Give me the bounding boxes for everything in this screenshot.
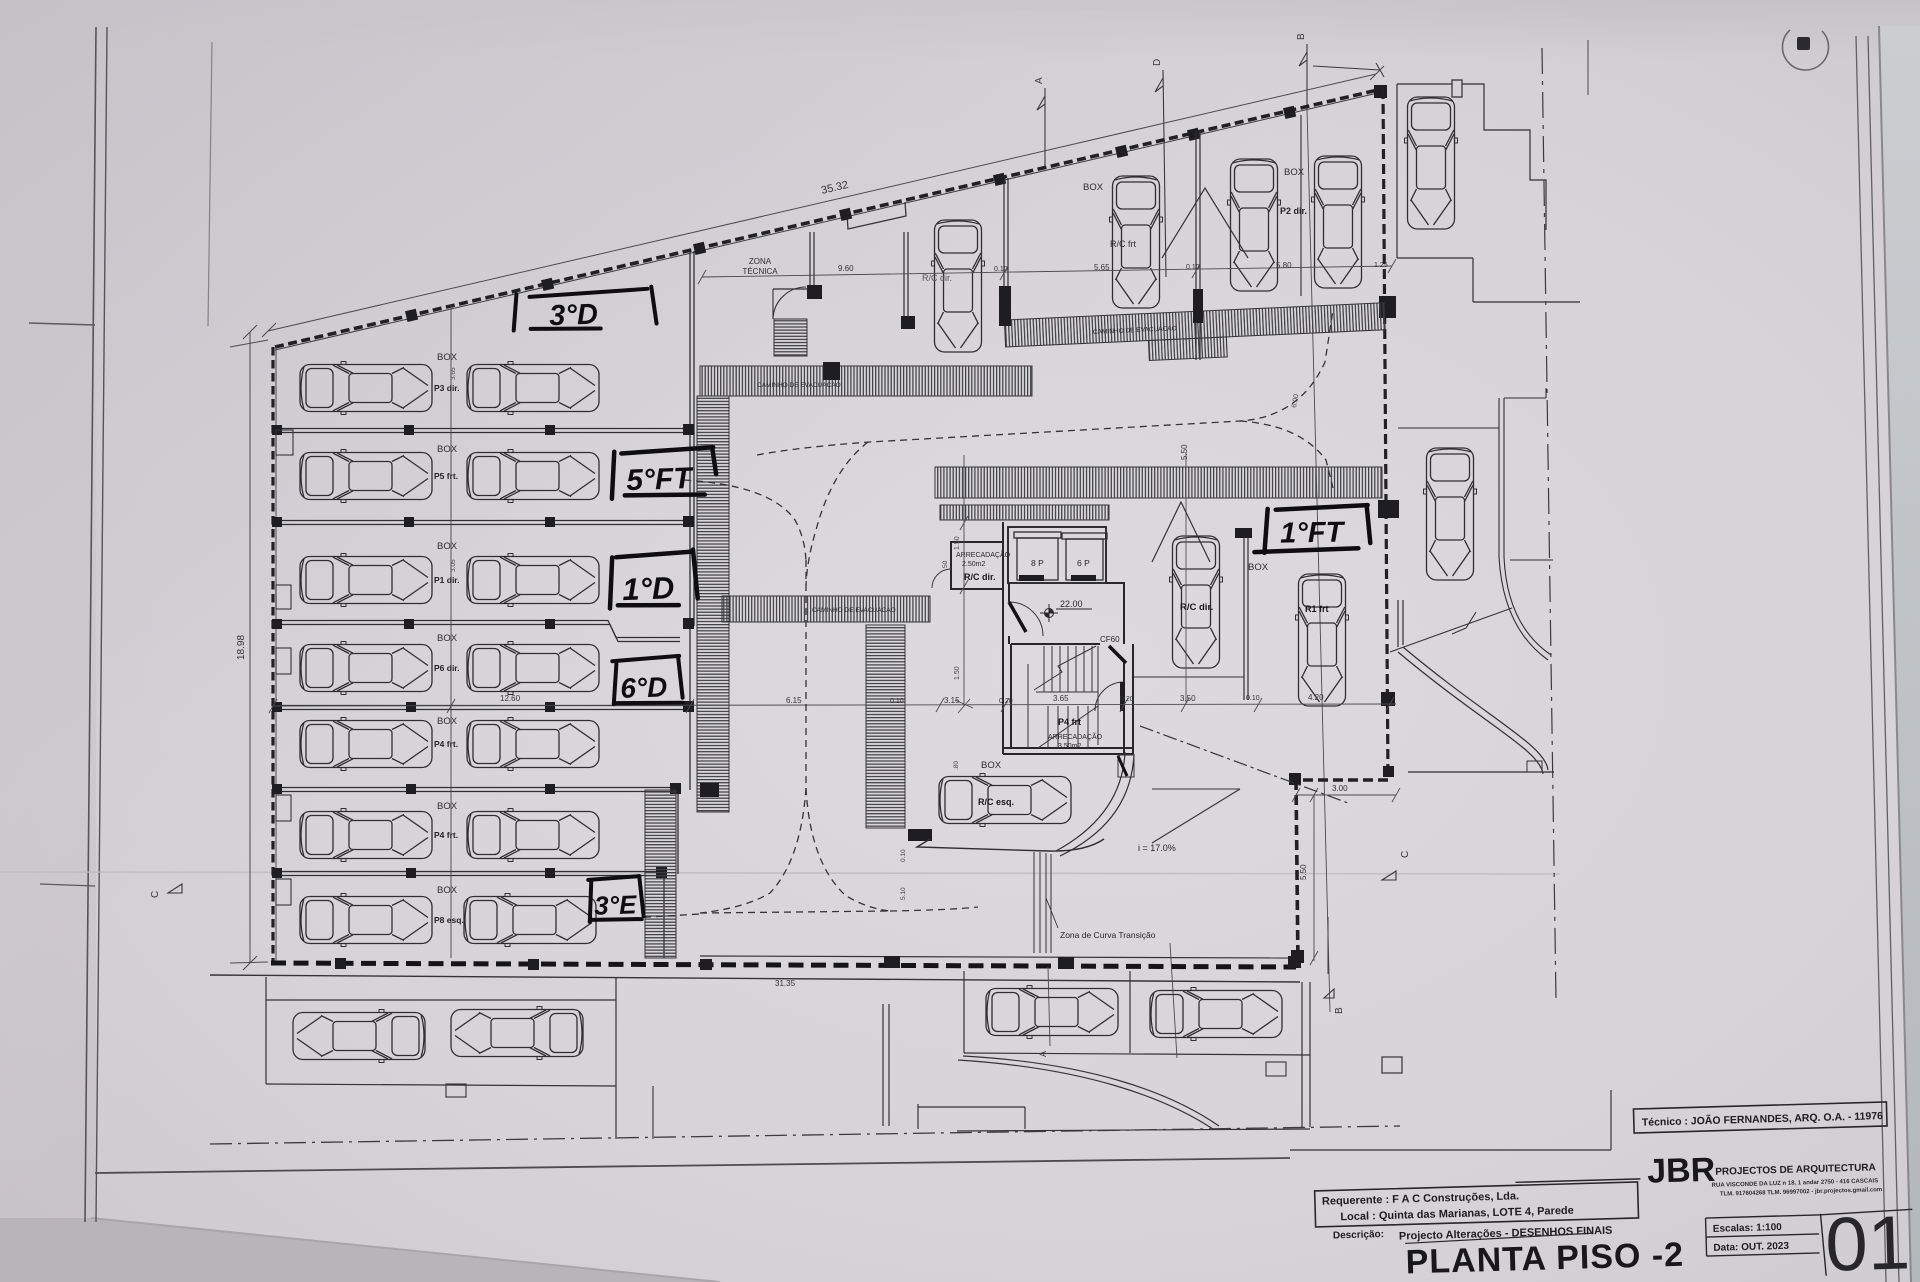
svg-text:3°E: 3°E [594, 889, 638, 920]
svg-text:3.65: 3.65 [450, 367, 457, 380]
svg-text:4.20: 4.20 [1308, 693, 1324, 702]
svg-text:1°FT: 1°FT [1280, 516, 1346, 549]
svg-text:0.10: 0.10 [890, 698, 904, 705]
svg-text:P4 frt: P4 frt [1058, 717, 1081, 727]
svg-text:B: B [1296, 33, 1307, 40]
svg-text:P2 dir.: P2 dir. [1280, 206, 1307, 216]
svg-text:3.15: 3.15 [944, 696, 960, 705]
svg-text:0.10: 0.10 [1246, 695, 1260, 702]
svg-text:Escalas: 1:100: Escalas: 1:100 [1713, 1222, 1783, 1235]
svg-text:BOX: BOX [437, 444, 458, 455]
svg-text:TÉCNICA: TÉCNICA [742, 267, 778, 276]
svg-text:3.50m2: 3.50m2 [1058, 743, 1081, 750]
svg-text:P8 esq.: P8 esq. [434, 915, 464, 925]
svg-text:Data: OUT. 2023: Data: OUT. 2023 [1713, 1241, 1789, 1254]
svg-text:5.65: 5.65 [1094, 263, 1110, 272]
svg-text:BOX: BOX [437, 801, 458, 812]
svg-text:3.50: 3.50 [1180, 694, 1196, 703]
svg-text:P3 dir.: P3 dir. [434, 383, 460, 393]
svg-text:B: B [1334, 1007, 1345, 1014]
svg-text:BOX: BOX [437, 633, 458, 644]
svg-text:5.50: 5.50 [1180, 444, 1189, 460]
svg-text:5°FT: 5°FT [626, 462, 695, 497]
svg-text:A: A [1034, 77, 1045, 84]
svg-text:1.50: 1.50 [954, 666, 961, 680]
svg-text:R/C dir.: R/C dir. [964, 572, 996, 582]
svg-text:BOX: BOX [981, 760, 1002, 771]
svg-text:ZONA: ZONA [749, 257, 772, 266]
svg-text:BOX: BOX [437, 352, 458, 363]
svg-text:BOX: BOX [437, 885, 458, 896]
svg-text:D: D [1152, 59, 1163, 66]
svg-text:22.00: 22.00 [1060, 599, 1083, 609]
svg-text:3.65: 3.65 [1053, 694, 1069, 703]
svg-text:R/C frt: R/C frt [1110, 239, 1136, 249]
svg-text:5.50: 5.50 [1299, 864, 1308, 880]
svg-text:P1 dir.: P1 dir. [434, 575, 460, 585]
svg-text:Descrição:: Descrição: [1333, 1229, 1384, 1241]
svg-text:1°D: 1°D [622, 570, 675, 607]
svg-text:2.50m2: 2.50m2 [962, 561, 985, 568]
svg-text:.80: .80 [953, 761, 960, 770]
svg-text:C: C [150, 891, 161, 898]
svg-text:1.25: 1.25 [1374, 262, 1388, 269]
svg-text:5.10: 5.10 [900, 887, 907, 900]
svg-text:12.60: 12.60 [500, 694, 521, 703]
svg-text:0.20: 0.20 [999, 698, 1013, 705]
svg-text:18.98: 18.98 [236, 635, 247, 660]
svg-text:0.10: 0.10 [900, 849, 907, 862]
svg-text:ARRECADAÇÃO: ARRECADAÇÃO [1048, 732, 1103, 741]
svg-text:P6 dir.: P6 dir. [434, 663, 460, 673]
svg-text:6 P: 6 P [1077, 558, 1090, 568]
svg-text:JBR: JBR [1647, 1151, 1716, 1191]
svg-text:R1 frt: R1 frt [1305, 604, 1329, 614]
svg-text:C: C [1400, 851, 1411, 858]
svg-text:9.60: 9.60 [838, 264, 854, 273]
svg-text:1.50: 1.50 [954, 536, 961, 550]
svg-text:CF60: CF60 [1100, 635, 1120, 644]
svg-text:3.00: 3.00 [1332, 784, 1348, 793]
svg-text:R/C esq.: R/C esq. [978, 797, 1014, 807]
svg-text:R/C dir.: R/C dir. [1180, 602, 1213, 613]
svg-text:Zona de Curva Transição: Zona de Curva Transição [1060, 930, 1156, 940]
svg-text:3°D: 3°D [549, 299, 599, 333]
svg-text:BOX: BOX [437, 716, 458, 727]
svg-text:0.20: 0.20 [1120, 696, 1134, 703]
svg-text:CAMINHO DE EVACUACAO: CAMINHO DE EVACUACAO [812, 607, 896, 614]
svg-text:0.10: 0.10 [994, 266, 1008, 273]
svg-text:0.10: 0.10 [1186, 264, 1200, 271]
svg-text:6°D: 6°D [620, 671, 668, 704]
svg-text:50: 50 [942, 560, 949, 568]
svg-text:PLANTA PISO -2: PLANTA PISO -2 [1405, 1236, 1684, 1282]
svg-text:CAMINHO DE EVACUACAO: CAMINHO DE EVACUACAO [757, 382, 841, 389]
svg-text:BOX: BOX [1083, 182, 1104, 193]
svg-text:P4 frt.: P4 frt. [434, 739, 458, 749]
svg-text:3.05: 3.05 [450, 559, 457, 572]
svg-text:P5 frt.: P5 frt. [434, 471, 458, 481]
svg-text:R/C dir.: R/C dir. [922, 273, 952, 283]
svg-text:31.35: 31.35 [775, 979, 796, 988]
svg-text:5.80: 5.80 [1276, 261, 1292, 270]
svg-text:6.15: 6.15 [786, 696, 802, 705]
svg-text:BOX: BOX [1284, 167, 1305, 178]
svg-text:i = 17.0%: i = 17.0% [1138, 843, 1176, 853]
svg-text:BOX: BOX [1248, 562, 1269, 573]
svg-text:BOX: BOX [437, 541, 458, 552]
svg-text:A: A [1038, 1051, 1048, 1057]
svg-text:P4 frt.: P4 frt. [434, 830, 458, 840]
svg-text:8 P: 8 P [1031, 558, 1044, 568]
